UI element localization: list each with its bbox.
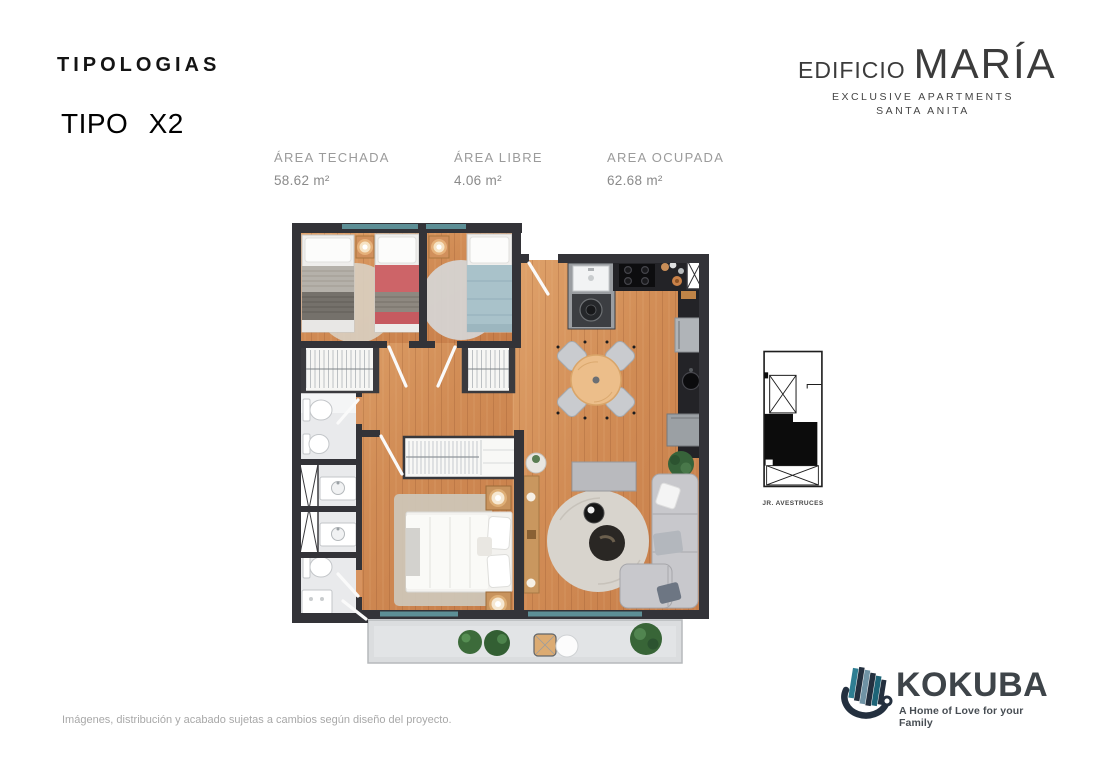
brand-prefix: EDIFICIO xyxy=(798,57,906,83)
brand-logo: KOKUBA A Home of Love for your Family xyxy=(836,664,1056,724)
logo-tagline: A Home of Love for your Family xyxy=(899,705,1056,729)
brand-subtitle-2: SANTA ANITA xyxy=(798,105,1048,117)
area-label: ÁREA TECHADA xyxy=(274,150,390,165)
area-label: AREA OCUPADA xyxy=(607,150,724,165)
area-stat-ocupada: AREA OCUPADA 62.68 m² xyxy=(607,150,724,188)
brochure-page: TIPOLOGIAS TIPO X2 EDIFICIOMARÍA EXCLUSI… xyxy=(0,0,1104,773)
disclaimer-text: Imágenes, distribución y acabado sujetas… xyxy=(62,714,452,726)
street-label: JR. AVESTRUCES xyxy=(756,500,830,507)
brand-name: MARÍA xyxy=(914,40,1057,87)
area-value: 4.06 m² xyxy=(454,173,543,188)
key-plan-diagram xyxy=(761,350,825,490)
brand-lockup: EDIFICIOMARÍA EXCLUSIVE APARTMENTS SANTA… xyxy=(798,40,1048,117)
brand-subtitle-1: EXCLUSIVE APARTMENTS xyxy=(798,91,1048,103)
unit-type-title: TIPO X2 xyxy=(61,108,184,140)
logo-wordmark: KOKUBA xyxy=(896,666,1048,705)
area-label: ÁREA LIBRE xyxy=(454,150,543,165)
typologies-title: TIPOLOGIAS xyxy=(57,54,220,77)
area-value: 58.62 m² xyxy=(274,173,390,188)
kokuba-logo-icon xyxy=(836,664,894,722)
brand-title: EDIFICIOMARÍA xyxy=(798,40,1048,88)
area-value: 62.68 m² xyxy=(607,173,724,188)
floor-plan-rendering xyxy=(288,218,716,670)
area-stat-techada: ÁREA TECHADA 58.62 m² xyxy=(274,150,390,188)
area-stat-libre: ÁREA LIBRE 4.06 m² xyxy=(454,150,543,188)
key-plan: JR. AVESTRUCES xyxy=(756,350,830,507)
